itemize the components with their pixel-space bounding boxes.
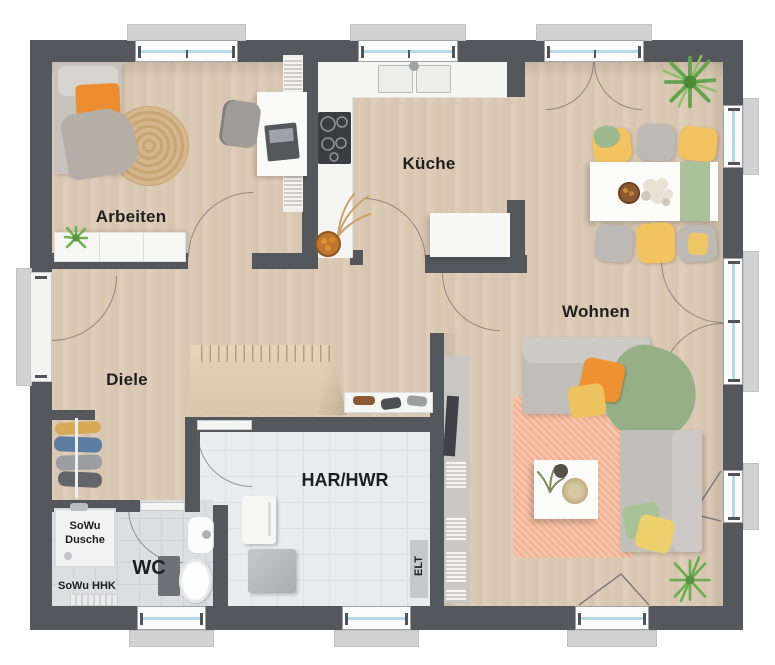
shoes-dark: [380, 397, 401, 411]
cooktop: [318, 112, 351, 164]
media-shelf: [444, 356, 470, 603]
slippers: [353, 396, 375, 405]
water-heater: [242, 496, 276, 544]
pillow-yellow: [567, 383, 607, 420]
shower-drain: [64, 552, 72, 560]
washing-machine: [248, 549, 296, 593]
room-label-arbeiten: Arbeiten: [71, 207, 191, 227]
floor-plan: Arbeiten Küche Wohnen Diele WC HAR/HWR S…: [0, 0, 775, 665]
toilet: [179, 559, 212, 603]
dining-chair-gray: [676, 223, 718, 263]
table-vase: [554, 464, 568, 478]
kitchen-island: [430, 213, 510, 257]
stairs: [190, 345, 347, 415]
book-stack: [284, 172, 302, 208]
shoe-bench: [344, 392, 433, 413]
dining-chair-yellow: [591, 127, 632, 165]
table-bowl: [618, 182, 640, 204]
fruit-bowl: [315, 231, 341, 257]
dining-chair-yellow: [677, 125, 718, 163]
radiator: [70, 594, 118, 606]
table-bowl: [562, 478, 588, 504]
label-sowu-dusche: SoWu Dusche: [57, 520, 113, 548]
coffee-table: [534, 460, 598, 519]
faucet: [409, 61, 419, 71]
kitchen-sink: [416, 65, 451, 93]
table-runner: [680, 162, 710, 221]
dining-chair-gray: [636, 123, 676, 162]
kitchen-sink: [378, 65, 413, 93]
label-sowu-hhk: SoWu HHK: [58, 580, 148, 592]
dining-table: [590, 162, 718, 221]
tv: [443, 396, 459, 457]
dining-chair-yellow: [636, 222, 675, 263]
room-label-har-hwr: HAR/HWR: [290, 470, 400, 491]
laptop: [264, 122, 300, 161]
room-label-wc: WC: [121, 557, 177, 580]
room-label-diele: Diele: [87, 370, 167, 390]
label-elt: ELT: [413, 546, 425, 586]
table-flowers: [636, 172, 676, 212]
coat-rack: [52, 416, 104, 500]
dried-flowers: [330, 188, 372, 240]
room-label-kueche: Küche: [379, 154, 479, 174]
basin-faucet: [202, 530, 211, 539]
shoes-gray: [407, 395, 428, 407]
plant-living: [666, 556, 714, 604]
office-chair: [218, 99, 262, 150]
plant-dining: [660, 52, 720, 112]
washbasin: [187, 516, 214, 554]
room-label-wohnen: Wohnen: [546, 302, 646, 322]
dining-chair-gray: [594, 224, 634, 264]
rack-pole: [75, 418, 78, 498]
shower-fitting: [70, 503, 88, 511]
